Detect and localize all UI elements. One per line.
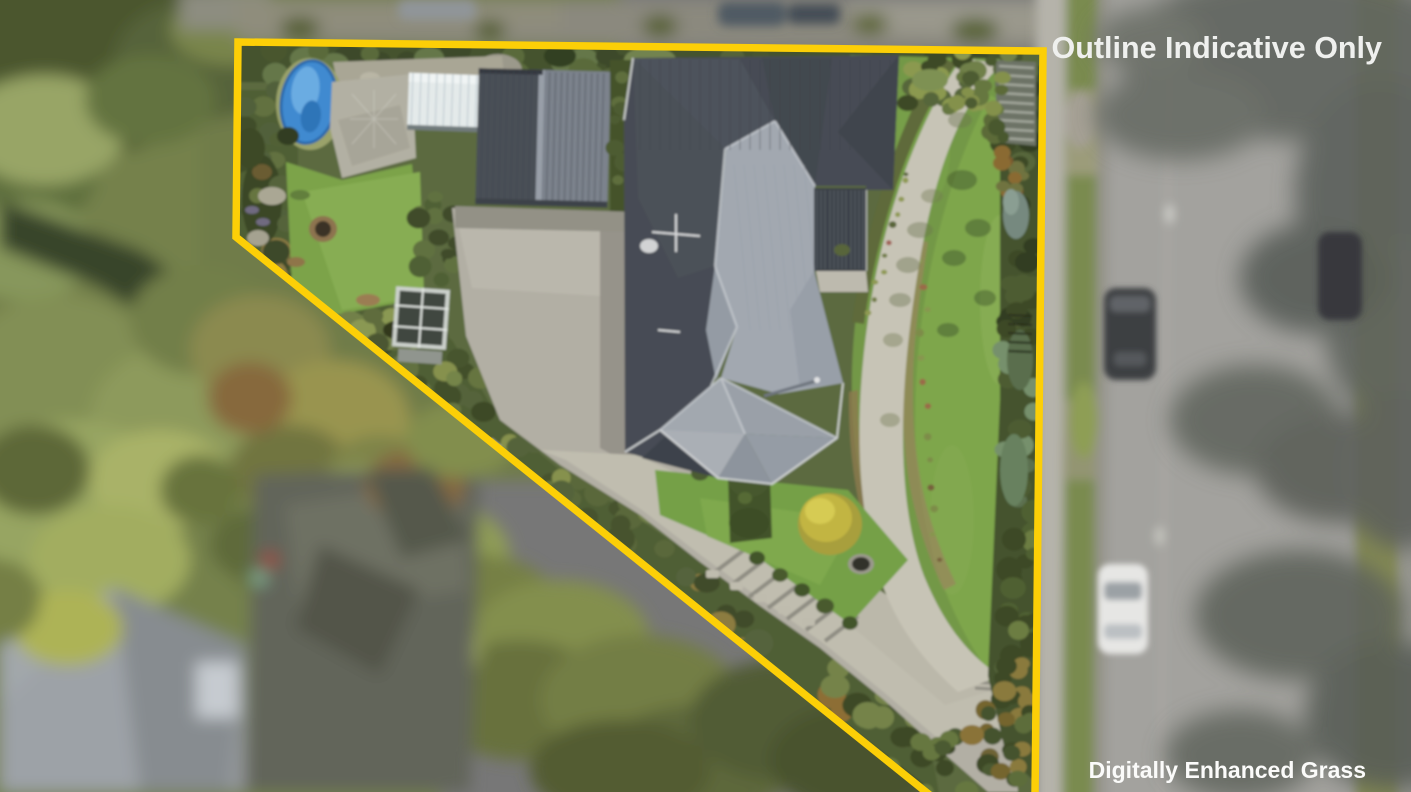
- svg-text:Outline Indicative Only: Outline Indicative Only: [1052, 31, 1383, 65]
- svg-text:Digitally Enhanced Grass: Digitally Enhanced Grass: [1089, 757, 1366, 783]
